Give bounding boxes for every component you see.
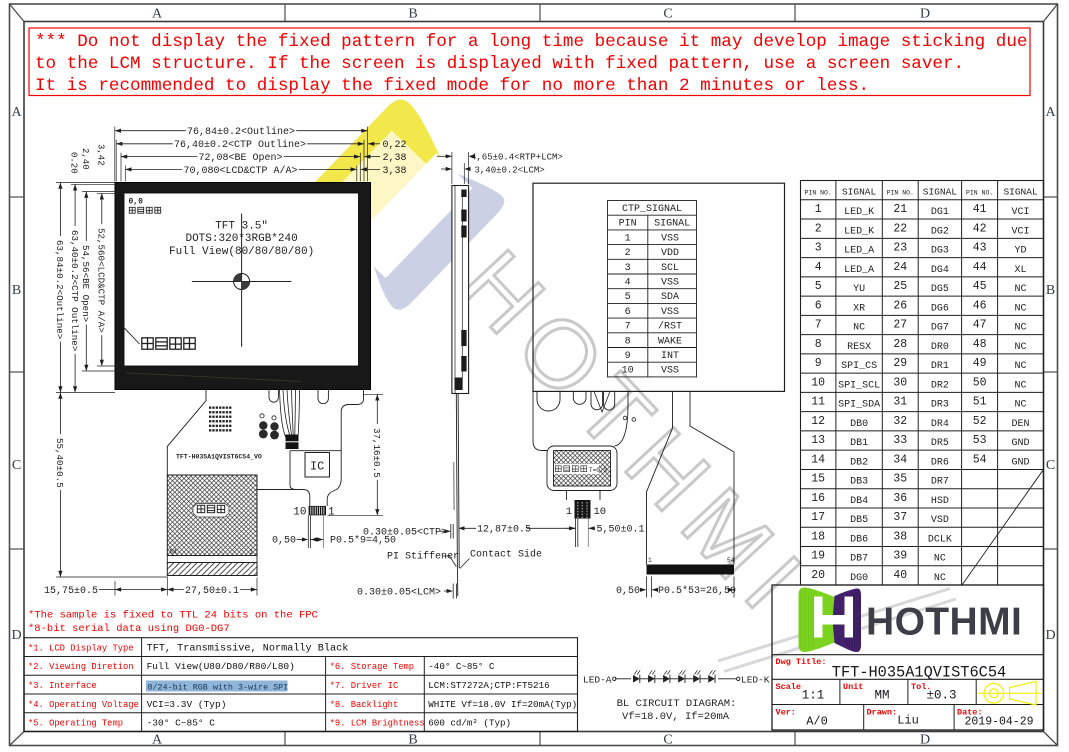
svg-text:36: 36 — [893, 492, 907, 505]
svg-text:LCM:ST7272A;CTP:FT5216: LCM:ST7272A;CTP:FT5216 — [428, 680, 549, 691]
svg-text:0.30±0.05<CTP>: 0.30±0.05<CTP> — [363, 528, 447, 539]
svg-text:35: 35 — [893, 473, 907, 486]
svg-text:*6. Storage Temp: *6. Storage Temp — [330, 662, 414, 672]
svg-text:14: 14 — [811, 453, 825, 466]
svg-text:T=0.3: T=0.3 — [589, 467, 607, 474]
svg-text:2,38: 2,38 — [383, 153, 407, 164]
svg-text:VCI=3.3V (Typ): VCI=3.3V (Typ) — [147, 699, 227, 710]
svg-text:SIGNAL: SIGNAL — [923, 187, 958, 198]
svg-text:SPI_CS: SPI_CS — [841, 361, 877, 372]
svg-text:12,87±0.5: 12,87±0.5 — [477, 525, 531, 536]
svg-text:54,56<BE Open>: 54,56<BE Open> — [80, 245, 91, 322]
svg-text:SCL: SCL — [661, 263, 679, 274]
svg-text:63,40±0.2<CTP Outline>: 63,40±0.2<CTP Outline> — [69, 230, 80, 351]
svg-text:10: 10 — [594, 506, 607, 518]
svg-text:0,0: 0,0 — [129, 198, 144, 207]
svg-text:28: 28 — [893, 338, 907, 351]
svg-text:3,38: 3,38 — [383, 166, 407, 177]
svg-text:27: 27 — [893, 319, 907, 332]
svg-text:NC: NC — [934, 554, 946, 565]
svg-text:NC: NC — [1015, 284, 1027, 295]
svg-text:26: 26 — [893, 299, 907, 312]
svg-text:IC: IC — [310, 460, 324, 474]
svg-text:DG2: DG2 — [931, 226, 949, 237]
svg-text:Vf=18.0V, If=20mA: Vf=18.0V, If=20mA — [622, 711, 730, 723]
svg-text:SIGNAL: SIGNAL — [842, 187, 877, 198]
svg-text:PIN NO.: PIN NO. — [887, 189, 914, 196]
svg-text:C: C — [663, 733, 672, 748]
svg-text:DB0: DB0 — [850, 419, 868, 430]
svg-text:34: 34 — [893, 453, 907, 466]
svg-text:HOTHMI: HOTHMI — [866, 601, 1022, 644]
svg-text:51: 51 — [973, 396, 987, 409]
svg-text:VSS: VSS — [661, 278, 679, 289]
svg-text:15: 15 — [811, 473, 825, 486]
svg-text:0,22: 0,22 — [383, 140, 407, 151]
svg-text:52,560<LCD&CTP A/A>: 52,560<LCD&CTP A/A> — [96, 228, 107, 333]
svg-text:DCLK: DCLK — [928, 534, 952, 545]
svg-text:10: 10 — [811, 376, 825, 389]
svg-text:LED-K: LED-K — [741, 674, 770, 685]
svg-text:A: A — [152, 7, 163, 22]
svg-text:D: D — [11, 628, 21, 643]
svg-text:*The sample is fixed to TTL 24: *The sample is fixed to TTL 24 bits on t… — [28, 610, 318, 622]
svg-text:NC: NC — [853, 323, 865, 334]
svg-text:37,16±0.5: 37,16±0.5 — [371, 428, 382, 478]
svg-text:DB6: DB6 — [850, 534, 868, 545]
svg-text:13: 13 — [811, 434, 825, 447]
svg-text:72,08<BE Open>: 72,08<BE Open> — [198, 153, 282, 164]
svg-text:SPI_SCL: SPI_SCL — [838, 380, 880, 391]
svg-text:39: 39 — [893, 550, 907, 563]
svg-text:24: 24 — [893, 261, 907, 274]
svg-text:45: 45 — [973, 280, 987, 293]
svg-text:1: 1 — [566, 506, 572, 518]
svg-text:10: 10 — [293, 507, 306, 519]
svg-text:VCI: VCI — [1012, 207, 1030, 218]
svg-text:Unit: Unit — [843, 682, 863, 692]
svg-text:1: 1 — [328, 507, 335, 519]
svg-text:VSS: VSS — [661, 366, 679, 377]
svg-text:55,40±0.5: 55,40±0.5 — [54, 438, 65, 488]
svg-text:to the LCM structure. If the s: to the LCM structure. If the screen is d… — [35, 54, 964, 74]
svg-text:18: 18 — [811, 530, 825, 543]
svg-text:31: 31 — [893, 396, 907, 409]
svg-text:SPI_SDA: SPI_SDA — [838, 400, 880, 411]
svg-text:DB1: DB1 — [850, 438, 868, 449]
svg-text:WAKE: WAKE — [658, 336, 682, 347]
svg-text:D: D — [920, 733, 930, 748]
svg-text:9: 9 — [625, 351, 631, 362]
svg-text:48: 48 — [973, 338, 987, 351]
svg-text:25: 25 — [893, 280, 907, 293]
svg-text:*5. Operating Temp: *5. Operating Temp — [28, 719, 123, 729]
svg-text:DR2: DR2 — [931, 380, 949, 391]
svg-text:C: C — [1046, 458, 1055, 473]
svg-text:NC: NC — [1015, 380, 1027, 391]
svg-text:2019-04-29: 2019-04-29 — [964, 716, 1033, 729]
svg-text:TFT, Transmissive, Normally Bl: TFT, Transmissive, Normally Black — [147, 642, 349, 654]
svg-text:Ver:: Ver: — [776, 708, 796, 718]
svg-text:GND: GND — [1012, 457, 1030, 468]
svg-text:*3. Interface: *3. Interface — [28, 681, 97, 691]
svg-text:19: 19 — [811, 550, 825, 563]
svg-text:NC: NC — [1015, 342, 1027, 353]
svg-text:54: 54 — [973, 453, 987, 466]
svg-text:DG1: DG1 — [931, 207, 949, 218]
svg-text:YD: YD — [1015, 246, 1027, 257]
svg-text:8: 8 — [815, 338, 822, 351]
svg-text:Full View(U80/D80/R80/L80): Full View(U80/D80/R80/L80) — [147, 661, 295, 672]
svg-text:NC: NC — [1015, 361, 1027, 372]
svg-text:C: C — [12, 458, 21, 473]
svg-text:D: D — [1045, 628, 1055, 643]
svg-text:GND: GND — [1012, 438, 1030, 449]
svg-text:BL CIRCUIT DIAGRAM:: BL CIRCUIT DIAGRAM: — [617, 698, 737, 710]
svg-text:12: 12 — [811, 415, 825, 428]
svg-text:4: 4 — [625, 278, 631, 289]
svg-text:A: A — [152, 733, 163, 748]
svg-text:32: 32 — [893, 415, 907, 428]
svg-text:1: 1 — [625, 233, 631, 244]
svg-text:27,50±0.1: 27,50±0.1 — [185, 586, 239, 597]
svg-text:Liu: Liu — [897, 714, 919, 728]
svg-text:0.30±0.05<LCM>: 0.30±0.05<LCM> — [357, 587, 441, 598]
svg-text:*1. LCD Display Type: *1. LCD Display Type — [28, 643, 134, 653]
svg-text:LED_A: LED_A — [844, 246, 874, 257]
svg-text:DEN: DEN — [1012, 419, 1030, 430]
svg-text:*8. Backlight: *8. Backlight — [330, 700, 399, 710]
svg-text:1: 1 — [815, 203, 822, 216]
svg-text:8: 8 — [625, 336, 631, 347]
svg-text:1:1: 1:1 — [802, 689, 825, 703]
svg-text:47: 47 — [973, 319, 987, 332]
svg-text:*8-bit serial data using DG0-D: *8-bit serial data using DG0-DG7 — [28, 623, 230, 635]
svg-text:29: 29 — [893, 357, 907, 370]
svg-text:3,42: 3,42 — [95, 144, 105, 166]
svg-text:23: 23 — [893, 242, 907, 255]
svg-text:37: 37 — [893, 511, 907, 524]
svg-text:54: 54 — [727, 557, 735, 564]
svg-text:DG7: DG7 — [931, 323, 949, 334]
svg-text:42: 42 — [973, 222, 987, 235]
svg-text:50: 50 — [973, 376, 987, 389]
svg-text:SIGNAL: SIGNAL — [1003, 187, 1038, 198]
svg-text:NC: NC — [934, 573, 946, 584]
svg-text:2: 2 — [625, 248, 631, 259]
svg-text:DB3: DB3 — [850, 477, 868, 488]
svg-text:RESX: RESX — [847, 342, 871, 353]
svg-text:41: 41 — [973, 203, 987, 216]
svg-text:70,080<LCD&CTP A/A>: 70,080<LCD&CTP A/A> — [183, 165, 297, 177]
svg-text:DG3: DG3 — [931, 246, 949, 257]
svg-text:2: 2 — [815, 222, 822, 235]
svg-text:0,50: 0,50 — [616, 586, 640, 597]
svg-text:76,84±0.2<Outline>: 76,84±0.2<Outline> — [187, 126, 295, 138]
svg-text:LED_K: LED_K — [844, 207, 874, 218]
svg-text:DR6: DR6 — [931, 457, 949, 468]
svg-text:4,65±0.4<RTP+LCM>: 4,65±0.4<RTP+LCM> — [471, 153, 563, 163]
svg-text:4: 4 — [815, 261, 822, 274]
svg-text:1: 1 — [250, 549, 254, 556]
svg-text:PIN NO.: PIN NO. — [805, 189, 832, 196]
svg-text:38: 38 — [893, 530, 907, 543]
svg-text:LED_K: LED_K — [844, 226, 874, 237]
svg-text:Drawn:: Drawn: — [867, 708, 898, 718]
svg-text:DB5: DB5 — [850, 515, 868, 526]
svg-text:*7. Driver IC: *7. Driver IC — [330, 681, 399, 691]
svg-text:40: 40 — [893, 569, 907, 582]
svg-text:DB4: DB4 — [850, 496, 868, 507]
svg-text:HSD: HSD — [931, 496, 949, 507]
svg-text:10: 10 — [622, 366, 634, 377]
svg-text:NC: NC — [1015, 400, 1027, 411]
svg-text:9: 9 — [815, 357, 822, 370]
svg-text:PI Stiffener: PI Stiffener — [387, 551, 459, 563]
svg-text:TFT-H035A1QVIST6C54_VO: TFT-H035A1QVIST6C54_VO — [176, 454, 262, 461]
svg-text:B: B — [12, 283, 21, 298]
svg-text:TFT-H035A1QVIST6C54: TFT-H035A1QVIST6C54 — [832, 664, 1006, 682]
svg-text:11: 11 — [811, 396, 825, 409]
svg-text:PIN NO.: PIN NO. — [966, 189, 993, 196]
svg-text:*** Do not display the fixed p: *** Do not display the fixed pattern for… — [35, 32, 1027, 52]
svg-text:5,50±0.1: 5,50±0.1 — [597, 525, 645, 536]
svg-text:DG6: DG6 — [931, 303, 949, 314]
svg-text:0.20: 0.20 — [69, 152, 79, 174]
svg-text:3,40±0.2<LCM>: 3,40±0.2<LCM> — [475, 165, 545, 175]
svg-text:52: 52 — [973, 415, 987, 428]
svg-text:A: A — [1045, 105, 1056, 120]
svg-text:XR: XR — [853, 303, 865, 314]
svg-text:6: 6 — [815, 299, 822, 312]
svg-text:DG5: DG5 — [931, 284, 949, 295]
svg-text:1: 1 — [648, 557, 652, 564]
svg-text:30: 30 — [893, 376, 907, 389]
svg-text:PIN: PIN — [619, 219, 637, 230]
svg-text:SDA: SDA — [661, 292, 679, 303]
svg-text:Scale: Scale — [776, 682, 802, 692]
svg-text:A/0: A/0 — [806, 715, 828, 729]
svg-text:8/24-bit RGB with 3-wire SPI: 8/24-bit RGB with 3-wire SPI — [148, 682, 289, 692]
svg-text:DR0: DR0 — [931, 342, 949, 353]
svg-text:7: 7 — [815, 319, 822, 332]
svg-text:*4. Operating Voltage: *4. Operating Voltage — [28, 700, 139, 710]
svg-text:MM: MM — [874, 689, 889, 703]
svg-text:DB2: DB2 — [850, 457, 868, 468]
svg-text:54: 54 — [170, 549, 178, 556]
svg-text:VSD: VSD — [931, 515, 949, 526]
svg-text:Contact Side: Contact Side — [470, 549, 542, 561]
svg-text:5: 5 — [815, 280, 822, 293]
svg-text:WHITE Vf=18.0V If=20mA(Typ): WHITE Vf=18.0V If=20mA(Typ) — [428, 699, 577, 710]
svg-text:DR7: DR7 — [931, 477, 949, 488]
svg-text:20: 20 — [811, 569, 825, 582]
svg-text:A: A — [11, 105, 22, 120]
svg-text:3: 3 — [815, 242, 822, 255]
svg-text:VSS: VSS — [661, 307, 679, 318]
svg-text:D: D — [920, 7, 930, 22]
svg-text:YU: YU — [853, 284, 865, 295]
svg-text:16: 16 — [811, 492, 825, 505]
svg-text:2,40: 2,40 — [80, 148, 90, 170]
svg-text:5: 5 — [625, 292, 631, 303]
svg-text:15,75±0.5: 15,75±0.5 — [44, 586, 98, 597]
svg-text:21: 21 — [893, 203, 907, 216]
svg-text:76,40±0.2<CTP Outline>: 76,40±0.2<CTP Outline> — [174, 139, 306, 151]
svg-text:6: 6 — [625, 307, 631, 318]
svg-text:NC: NC — [1015, 303, 1027, 314]
svg-text:63,84±0.2<Outline>: 63,84±0.2<Outline> — [54, 240, 65, 339]
svg-text:-40° C~85° C: -40° C~85° C — [428, 661, 495, 672]
svg-text:DG4: DG4 — [931, 265, 949, 276]
svg-text:33: 33 — [893, 434, 907, 447]
svg-text:VSS: VSS — [661, 233, 679, 244]
svg-text:0,50: 0,50 — [272, 536, 296, 547]
svg-text:VDD: VDD — [661, 248, 679, 259]
svg-text:B: B — [408, 733, 417, 748]
svg-text:43: 43 — [973, 242, 987, 255]
svg-text:-30° C~85° C: -30° C~85° C — [147, 718, 216, 729]
svg-text:DR1: DR1 — [931, 361, 949, 372]
svg-text:/RST: /RST — [658, 321, 682, 333]
svg-text:DR3: DR3 — [931, 400, 949, 411]
svg-text:53: 53 — [973, 434, 987, 447]
svg-text:*9. LCM Brightness: *9. LCM Brightness — [330, 719, 425, 729]
svg-text:22: 22 — [893, 222, 907, 235]
svg-text:*2. Viewing Diretion: *2. Viewing Diretion — [28, 662, 134, 672]
svg-text:P0.5*53=26,50: P0.5*53=26,50 — [658, 585, 736, 597]
svg-text:49: 49 — [973, 357, 987, 370]
svg-text:LED_A: LED_A — [844, 265, 874, 276]
svg-text:±0.3: ±0.3 — [926, 689, 956, 703]
svg-text:C: C — [663, 7, 672, 22]
svg-text:17: 17 — [811, 511, 825, 524]
svg-text:B: B — [1046, 283, 1055, 298]
svg-text:LED-A: LED-A — [583, 674, 612, 685]
svg-text:DR4: DR4 — [931, 419, 949, 430]
svg-text:DB7: DB7 — [850, 554, 868, 565]
svg-text:DR5: DR5 — [931, 438, 949, 449]
svg-text:It is recommended to display t: It is recommended to display the fixed m… — [35, 76, 869, 96]
svg-text:7: 7 — [625, 322, 631, 333]
svg-text:600 cd/m² (Typ): 600 cd/m² (Typ) — [428, 718, 511, 729]
svg-text:INT: INT — [661, 351, 679, 362]
svg-text:B: B — [408, 7, 417, 22]
svg-text:44: 44 — [973, 261, 987, 274]
svg-text:VCI: VCI — [1012, 226, 1030, 237]
svg-text:DG0: DG0 — [850, 573, 868, 584]
svg-text:46: 46 — [973, 299, 987, 312]
svg-text:Dwg Title:: Dwg Title: — [776, 657, 827, 667]
svg-text:CTP_SIGNAL: CTP_SIGNAL — [622, 204, 682, 215]
svg-text:SIGNAL: SIGNAL — [654, 219, 690, 230]
svg-text:3: 3 — [625, 263, 631, 274]
svg-text:NC: NC — [1015, 323, 1027, 334]
svg-text:XL: XL — [1015, 265, 1027, 276]
